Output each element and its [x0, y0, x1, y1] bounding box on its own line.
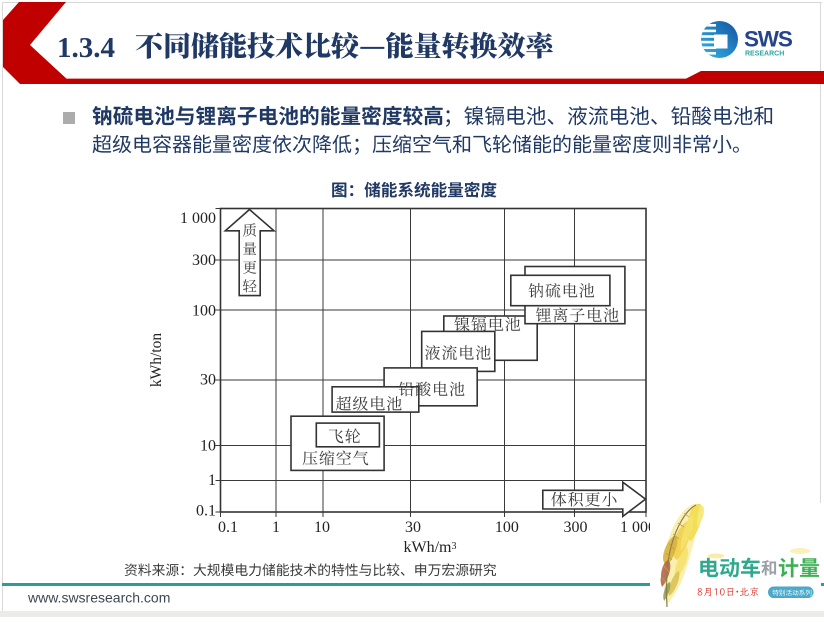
svg-text:0.1: 0.1 — [196, 503, 216, 520]
svg-text:kWh/m3: kWh/m3 — [404, 539, 457, 556]
svg-text:300: 300 — [564, 519, 588, 536]
svg-text:30: 30 — [200, 372, 216, 389]
svg-text:10: 10 — [200, 438, 216, 455]
svg-text:SWS: SWS — [744, 27, 793, 52]
svg-text:RESEARCH: RESEARCH — [745, 51, 784, 58]
svg-text:100: 100 — [495, 519, 519, 536]
svg-text:30: 30 — [405, 519, 421, 536]
svg-text:1: 1 — [208, 472, 216, 489]
svg-text:300: 300 — [192, 252, 216, 269]
svg-text:kWh/ton: kWh/ton — [148, 333, 165, 387]
svg-text:100: 100 — [192, 303, 216, 320]
svg-text:1.3.4: 1.3.4 — [57, 32, 115, 64]
svg-text:10: 10 — [314, 519, 330, 536]
svg-text:1 000: 1 000 — [180, 210, 216, 227]
svg-text:1: 1 — [272, 519, 280, 536]
svg-text:0.1: 0.1 — [218, 519, 238, 536]
svg-text:www.swsresearch.com: www.swsresearch.com — [27, 590, 170, 606]
